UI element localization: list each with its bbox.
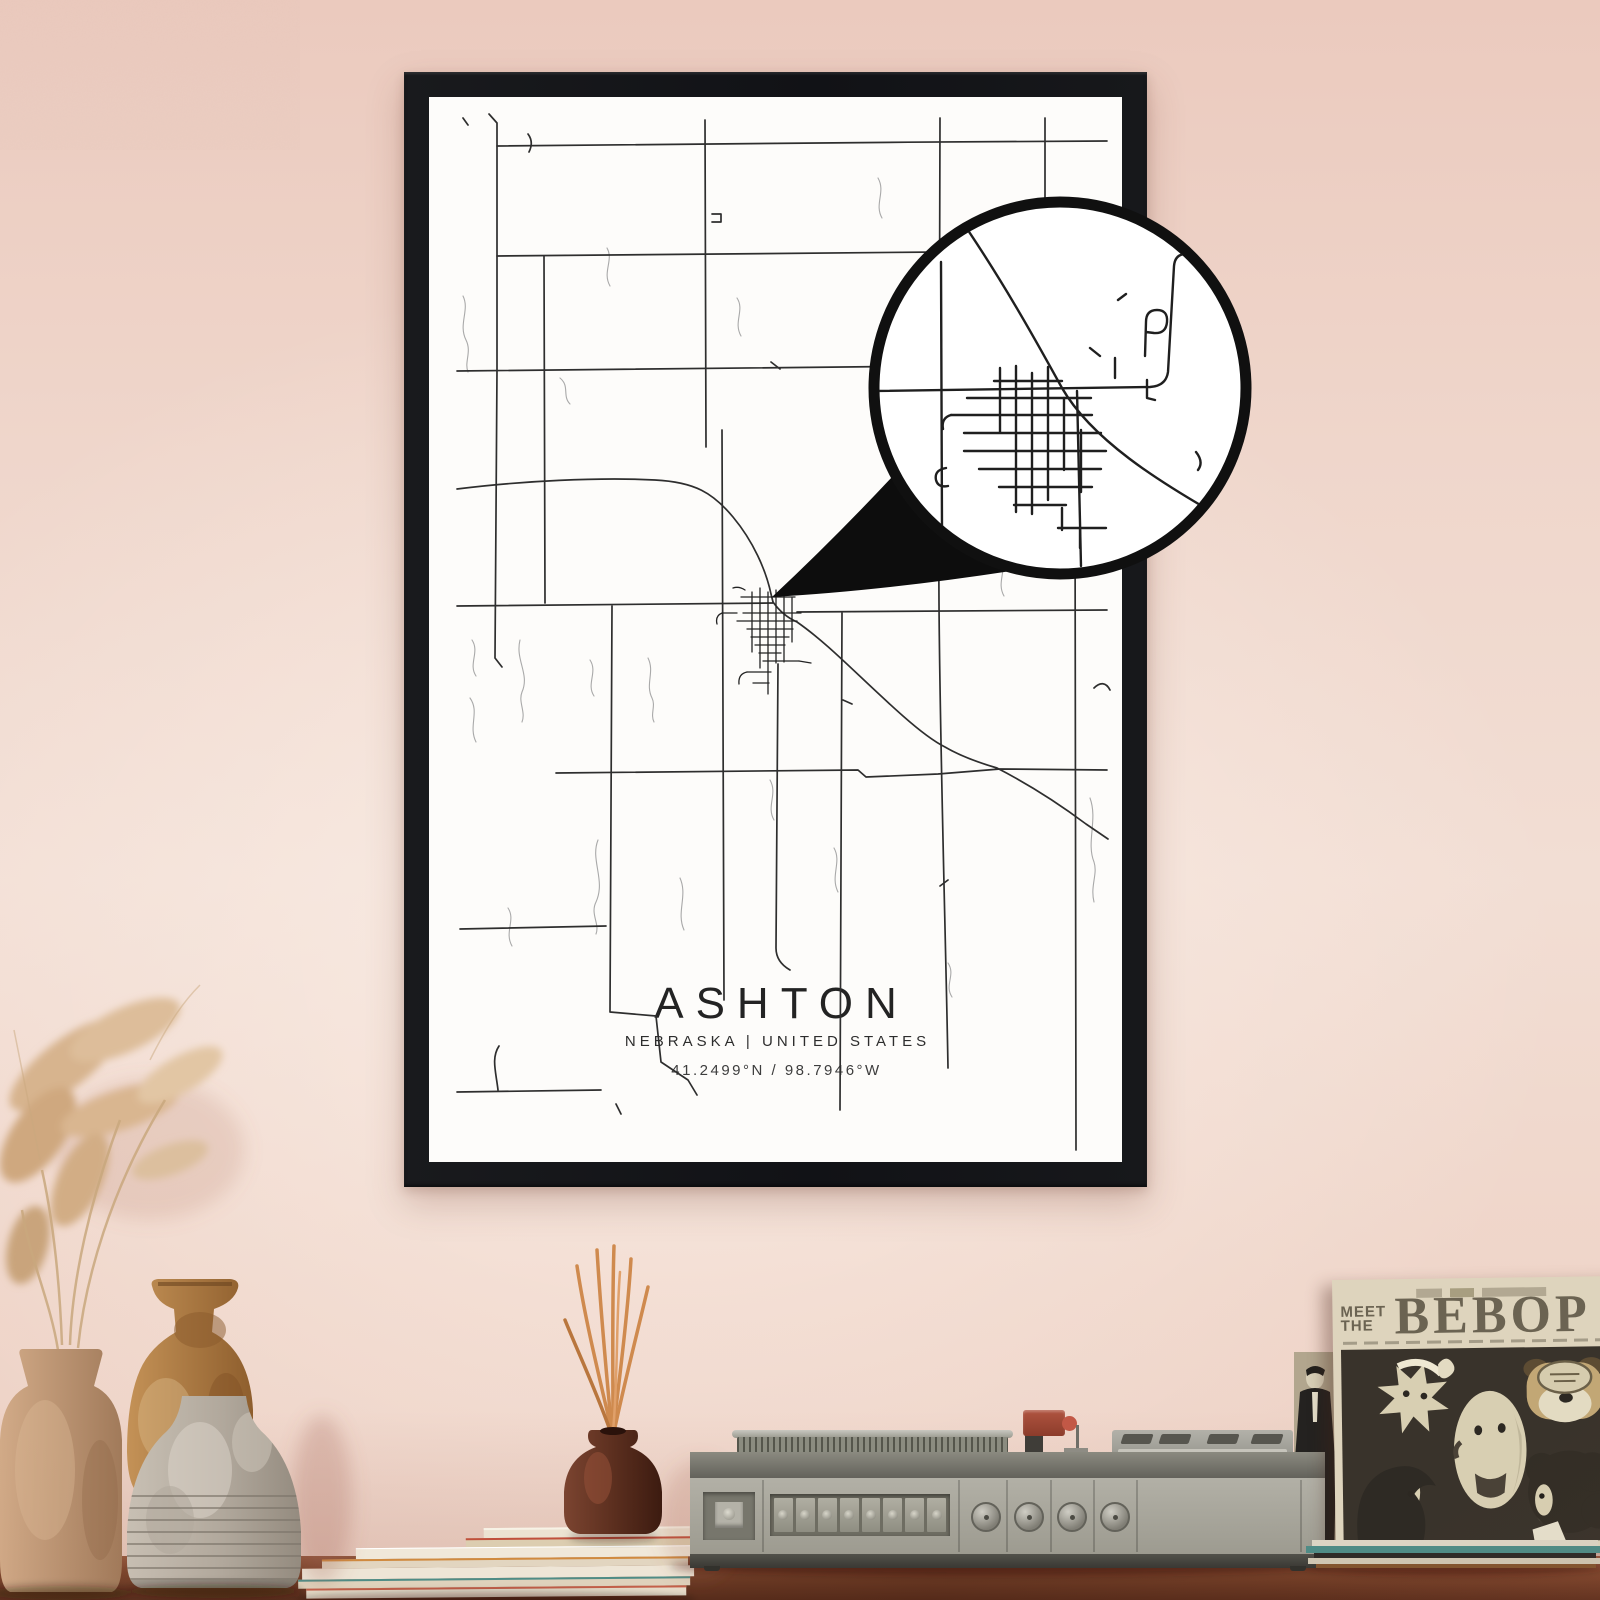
player-foot-right <box>1290 1566 1306 1571</box>
sleeve-pretitle-line2: THE <box>1341 1319 1387 1334</box>
control-knob-3 <box>1057 1502 1087 1532</box>
poster-title: ASHTON <box>429 981 1122 1027</box>
poster-text-block: ASHTON NEBRASKA | UNITED STATES 41.2499°… <box>429 981 1122 1079</box>
map-poster: ASHTON NEBRASKA | UNITED STATES 41.2499°… <box>429 97 1122 1162</box>
poster-coordinates: 41.2499°N / 98.7946°W <box>429 1062 1122 1079</box>
tonearm-post <box>1025 1434 1043 1454</box>
player-front-panel <box>690 1478 1325 1554</box>
pampas-grass <box>0 985 231 1350</box>
sleeve-artwork <box>1341 1346 1600 1544</box>
artwork-face-long <box>1453 1390 1527 1509</box>
vinyl-records-stack <box>1306 1540 1600 1570</box>
control-knob-1 <box>971 1502 1001 1532</box>
record-sleeve: MEET THE BEBOP <box>1332 1276 1600 1552</box>
power-button <box>715 1502 743 1528</box>
control-knob-2 <box>1014 1502 1044 1532</box>
artwork-face-bottom-right <box>1526 1450 1600 1541</box>
tonearm-cartridge <box>1023 1410 1065 1436</box>
control-knob-4 <box>1100 1502 1130 1532</box>
power-button-plate <box>703 1492 755 1540</box>
push-button-row <box>770 1494 950 1536</box>
turntable-platter <box>737 1437 1008 1453</box>
label-badge <box>1538 1361 1591 1393</box>
artwork-face-bottom-left <box>1356 1466 1436 1544</box>
diffuser-reeds <box>565 1246 648 1433</box>
player-foot-left <box>704 1566 720 1571</box>
sleeve-pretitle: MEET THE <box>1340 1305 1386 1334</box>
poster-region: NEBRASKA | UNITED STATES <box>429 1033 1122 1050</box>
player-base <box>690 1554 1325 1568</box>
room-scene: ASHTON NEBRASKA | UNITED STATES 41.2499°… <box>0 0 1600 1600</box>
sleeve-title: BEBOP <box>1394 1284 1591 1347</box>
tonearm-knob <box>1062 1416 1077 1431</box>
poster-frame: ASHTON NEBRASKA | UNITED STATES 41.2499°… <box>404 72 1147 1187</box>
film-grain-overlay <box>0 0 300 150</box>
player-deck <box>690 1452 1325 1478</box>
record-player <box>690 1408 1325 1568</box>
magazine-stack <box>298 1524 695 1600</box>
